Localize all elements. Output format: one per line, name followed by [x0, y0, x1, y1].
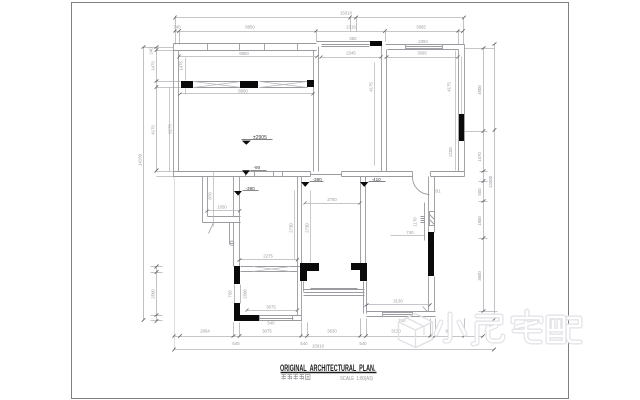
svg-text:3665: 3665 — [416, 25, 426, 30]
svg-text:500: 500 — [477, 188, 482, 196]
svg-text:±2905: ±2905 — [253, 135, 267, 141]
svg-text:-390: -390 — [246, 186, 256, 191]
svg-text:2315: 2315 — [346, 25, 356, 30]
svg-text:3075: 3075 — [262, 329, 272, 334]
svg-text:4175: 4175 — [369, 82, 374, 92]
svg-text:13300: 13300 — [488, 175, 493, 188]
svg-text:14150: 14150 — [138, 153, 143, 166]
svg-text:540: 540 — [359, 341, 367, 346]
svg-text:15010: 15010 — [312, 344, 325, 349]
svg-text:ORIGINAL ARCHITECTURAL PLAN.: ORIGINAL ARCHITECTURAL PLAN. — [280, 363, 376, 373]
svg-text:4175: 4175 — [447, 82, 452, 92]
svg-text:2275: 2275 — [263, 254, 273, 259]
svg-text:B1: B1 — [435, 189, 441, 194]
svg-text:1800: 1800 — [477, 216, 482, 226]
svg-text:SCALE 1:80(A3): SCALE 1:80(A3) — [340, 376, 373, 382]
svg-text:1475: 1475 — [179, 61, 184, 71]
svg-text:8800: 8800 — [238, 89, 248, 94]
svg-text:540: 540 — [300, 341, 308, 346]
svg-text:-410: -410 — [372, 177, 382, 182]
svg-text:3130: 3130 — [393, 299, 403, 304]
svg-text:4175: 4175 — [151, 125, 156, 135]
svg-text:2730: 2730 — [305, 223, 310, 233]
svg-text:8850: 8850 — [239, 51, 249, 56]
svg-text:2500: 2500 — [151, 289, 156, 299]
svg-text:750: 750 — [228, 290, 233, 298]
svg-text:4500: 4500 — [477, 85, 482, 95]
svg-text:2100: 2100 — [448, 147, 453, 157]
svg-text:3075: 3075 — [266, 305, 276, 310]
svg-text:1170: 1170 — [413, 217, 418, 227]
svg-text:1050: 1050 — [217, 205, 227, 210]
svg-text:3630: 3630 — [327, 329, 337, 334]
svg-text:3665: 3665 — [417, 51, 427, 56]
svg-text:2345: 2345 — [346, 51, 356, 56]
svg-text:350: 350 — [349, 36, 357, 41]
svg-text:1475: 1475 — [151, 61, 156, 71]
svg-text:3130: 3130 — [391, 329, 401, 334]
svg-text:2350: 2350 — [418, 39, 428, 44]
svg-text:-90: -90 — [254, 165, 261, 170]
svg-text:740: 740 — [406, 230, 414, 235]
svg-text:2064: 2064 — [200, 329, 210, 334]
svg-text:-390: -390 — [313, 177, 323, 182]
svg-text:740: 740 — [173, 25, 181, 30]
svg-text:1470: 1470 — [477, 152, 482, 162]
svg-text:6175: 6175 — [168, 124, 173, 134]
svg-text:2750: 2750 — [327, 197, 337, 202]
svg-text:3600: 3600 — [477, 271, 482, 281]
svg-text:2500: 2500 — [243, 289, 248, 299]
svg-text:870: 870 — [208, 192, 213, 200]
svg-text:15010: 15010 — [340, 11, 353, 16]
svg-text:240: 240 — [149, 47, 154, 55]
svg-text:2730: 2730 — [289, 223, 294, 233]
svg-text:540: 540 — [267, 321, 275, 326]
svg-text:8850: 8850 — [245, 25, 255, 30]
svg-text:540: 540 — [232, 341, 240, 346]
